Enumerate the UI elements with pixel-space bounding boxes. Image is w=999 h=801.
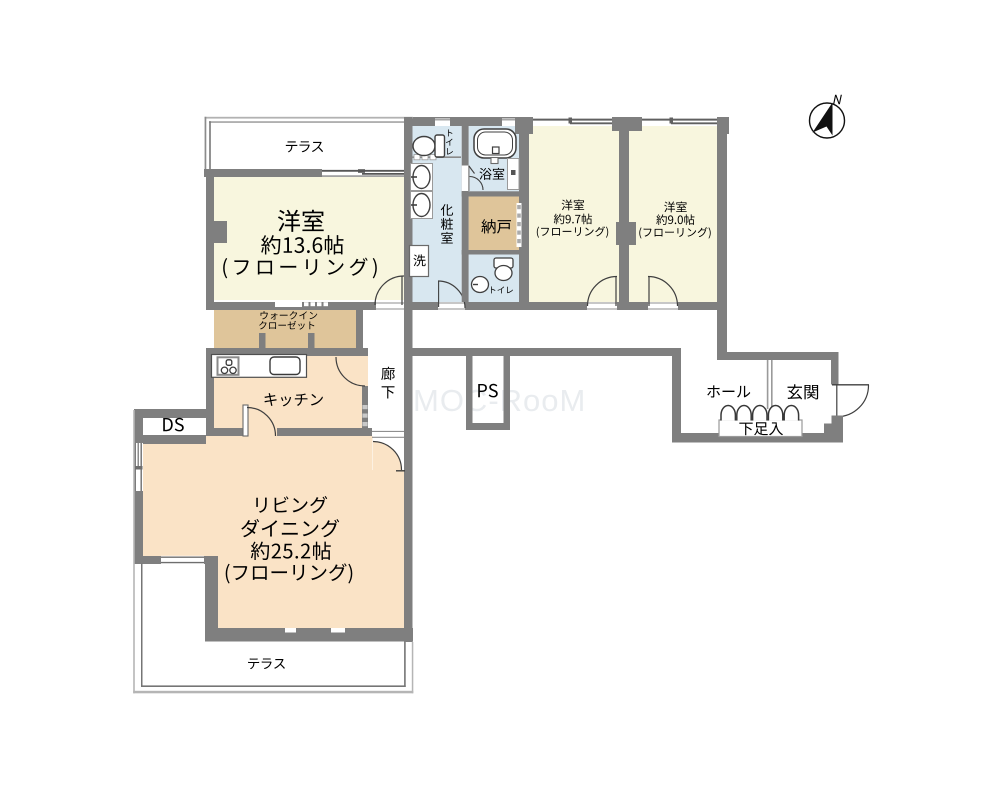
- svg-text:MOC-RooM: MOC-RooM: [413, 383, 586, 418]
